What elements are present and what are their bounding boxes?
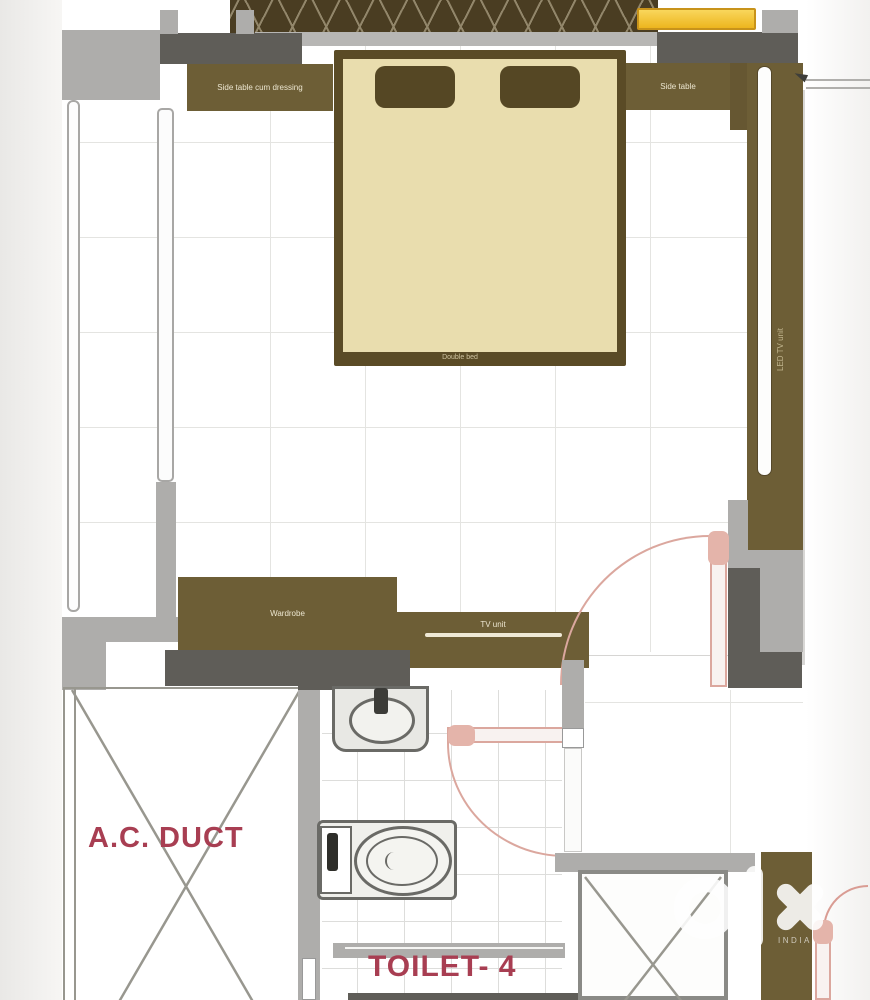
wall-post [236,10,254,34]
wall-block-topleft [62,30,160,100]
bedroom-door-hinge [708,531,729,565]
toilet-door-arc [447,743,565,857]
door-jamb [562,728,584,748]
toilet-partition-line [345,947,563,949]
wall-post [160,10,178,34]
floor-gridline [585,702,803,703]
olx-watermark: INDIA [660,860,845,955]
leader-line [806,87,870,89]
pillow [375,66,455,108]
tv-screen-line [425,633,562,637]
l-wall-horizontal [728,652,802,688]
wall-segment [657,32,798,64]
pillow [500,66,580,108]
led-tv-panel [747,63,803,550]
floor-plan: Side table cum dressing Side table LED T… [0,0,870,1000]
wall-bottom-dark [348,993,580,1000]
headboard-wall [230,0,658,34]
gold-light-panel [637,8,756,30]
toilet-door-hinge [448,725,475,746]
tile-gridline [322,921,562,922]
window-glazing-inner [157,108,174,482]
ac-duct-label: A.C. DUCT [88,822,268,855]
side-table-right-label: Side table [626,65,730,108]
olx-l-icon [746,866,763,948]
floor-gridline [80,427,748,428]
wc-flush-icon [327,833,338,871]
window-glazing-left [67,100,80,612]
olx-o-icon [674,877,736,939]
wall-segment [160,33,302,64]
wall-filler [728,500,748,568]
wall-strip [255,32,658,46]
side-table-left-label: Side table cum dressing [197,66,323,109]
wall-opening [564,748,582,852]
double-bed-label: Double bed [400,354,520,361]
floor-gridline [80,522,748,523]
toilet-label: TOILET- 4 [368,950,588,984]
wall-left-horizontal [62,617,178,642]
page-right-margin [806,0,870,1000]
basin-tap-icon [374,688,388,714]
floor-gridline [270,46,271,652]
olx-country-label: INDIA [778,936,812,945]
wardrobe-label: Wardrobe [178,577,397,650]
wall-left-lower [62,640,106,690]
wall-toilet-right-top [562,660,584,730]
door-jamb [302,958,316,1000]
page-left-margin [0,0,62,1000]
wall-left-vertical [156,482,176,622]
wc-mark [385,852,403,870]
led-tv-screen [757,66,772,476]
leader-line [806,79,870,81]
led-tv-label: LED TV unit [776,285,792,415]
wall-post [762,10,798,33]
floor-gridline [730,690,731,854]
